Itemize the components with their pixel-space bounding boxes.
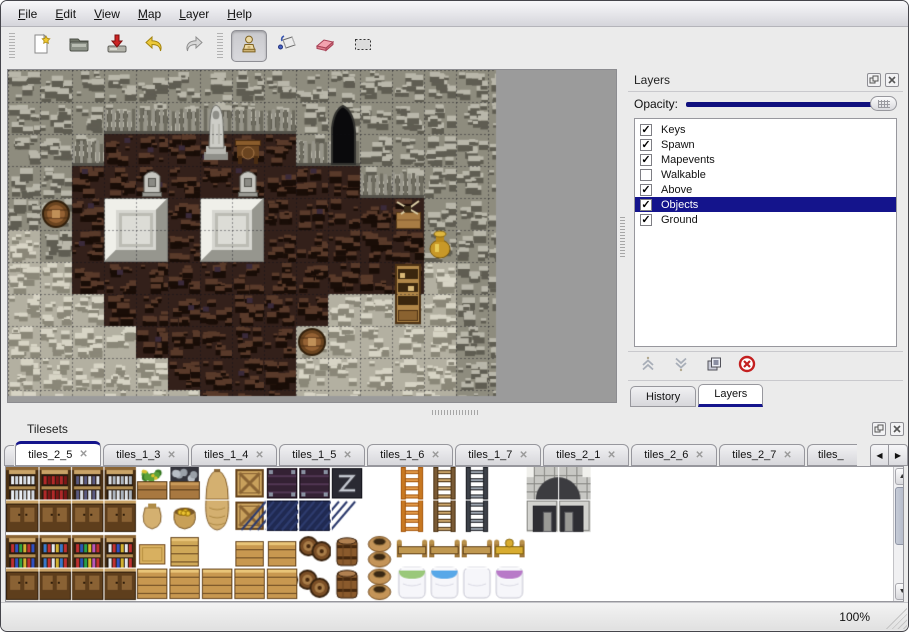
float-panel-icon[interactable]	[867, 73, 881, 87]
horizontal-splitter[interactable]	[1, 407, 908, 418]
eraser-tool-button[interactable]	[307, 30, 343, 62]
tab-layers[interactable]: Layers	[698, 384, 763, 407]
layer-row-spawn[interactable]: ✓Spawn	[635, 137, 896, 152]
move-layer-down-button[interactable]	[671, 356, 691, 376]
duplicate-layer-icon	[705, 355, 723, 378]
menu-bar: FileEditViewMapLayerHelp	[1, 1, 908, 27]
layer-row-above[interactable]: ✓Above	[635, 182, 896, 197]
layer-visibility-checkbox[interactable]	[640, 169, 652, 181]
layers-panel-header: Layers	[628, 69, 903, 91]
tab-scroll-arrows: ◀▶	[870, 444, 908, 466]
tileset-tab-label: tiles_1_6	[380, 449, 424, 461]
undo-icon	[143, 32, 167, 61]
tileset-tab-tiles[interactable]: tiles_	[807, 444, 857, 466]
fill-tool-button[interactable]	[269, 30, 305, 62]
layer-visibility-checkbox[interactable]: ✓	[640, 124, 652, 136]
tileset-tab-tiles_1_3[interactable]: tiles_1_3✕	[103, 444, 189, 466]
close-tab-icon[interactable]: ✕	[783, 450, 791, 461]
tileset-tab-tiles_1_4[interactable]: tiles_1_4✕	[191, 444, 277, 466]
map-canvas[interactable]	[8, 70, 616, 402]
tileset-tab-label: tiles_2_5	[28, 449, 72, 461]
layer-visibility-checkbox[interactable]: ✓	[640, 199, 652, 211]
layer-visibility-checkbox[interactable]: ✓	[640, 139, 652, 151]
layer-row-mapevents[interactable]: ✓Mapevents	[635, 152, 896, 167]
layer-list[interactable]: ✓Keys✓Spawn✓MapeventsWalkable✓Above✓Obje…	[634, 118, 897, 347]
close-panel-icon[interactable]	[885, 73, 899, 87]
layer-name: Objects	[661, 199, 698, 211]
clipped-tab-left[interactable]	[4, 445, 14, 466]
splitter-grip	[432, 410, 478, 415]
slider-grip-dots	[878, 100, 890, 108]
tileset-tab-label: tiles_2_6	[644, 449, 688, 461]
menu-file[interactable]: File	[9, 4, 46, 24]
close-tab-icon[interactable]: ✕	[607, 450, 615, 461]
menu-layer[interactable]: Layer	[170, 4, 218, 24]
delete-layer-icon	[738, 355, 756, 378]
layer-name: Ground	[661, 214, 698, 226]
select-tool-icon	[351, 32, 375, 61]
delete-layer-button[interactable]	[737, 356, 757, 376]
tileset-tab-tiles_2_5[interactable]: tiles_2_5✕	[15, 441, 101, 466]
layer-row-keys[interactable]: ✓Keys	[635, 122, 896, 137]
menu-view[interactable]: View	[85, 4, 129, 24]
open-icon	[67, 32, 91, 61]
duplicate-layer-button[interactable]	[704, 356, 724, 376]
tilesets-panel-title: Tilesets	[27, 422, 68, 436]
eraser-tool-icon	[313, 32, 337, 61]
vertical-splitter[interactable]	[617, 69, 628, 407]
layer-visibility-checkbox[interactable]: ✓	[640, 184, 652, 196]
app-window: FileEditViewMapLayerHelp Layers Opacity:	[0, 0, 909, 632]
save-icon	[105, 32, 129, 61]
tileset-tab-label: tiles_1_7	[468, 449, 512, 461]
panel-window-icons	[872, 422, 904, 436]
scroll-down-icon[interactable]: ▼	[895, 583, 904, 600]
tileset-tab-label: tiles_2_1	[556, 449, 600, 461]
main-area: Layers Opacity: ✓Keys✓Spawn✓MapeventsWal…	[1, 65, 908, 407]
fill-tool-icon	[275, 32, 299, 61]
layer-row-ground[interactable]: ✓Ground	[635, 212, 896, 227]
tileset-tab-label: tiles_2_7	[732, 449, 776, 461]
redo-icon	[181, 32, 205, 61]
tileset-tabs: tiles_2_5✕tiles_1_3✕tiles_1_4✕tiles_1_5✕…	[1, 440, 908, 466]
move-layer-up-icon	[639, 355, 657, 378]
layer-name: Mapevents	[661, 154, 715, 166]
scroll-up-icon[interactable]: ▲	[895, 468, 904, 485]
tilesets-panel-header: Tilesets	[1, 418, 908, 440]
opacity-slider-track[interactable]	[686, 102, 891, 107]
move-layer-down-icon	[672, 355, 690, 378]
close-tab-icon[interactable]: ✕	[255, 450, 263, 461]
tileset-canvas[interactable]	[6, 467, 893, 601]
layer-visibility-checkbox[interactable]: ✓	[640, 214, 652, 226]
tileset-scrollbar[interactable]: ▲ ▼	[893, 467, 904, 601]
tileset-tab-tiles_2_6[interactable]: tiles_2_6✕	[631, 444, 717, 466]
stamp-tool-icon	[237, 32, 261, 61]
tileset-tab-label: tiles_	[818, 449, 844, 461]
layer-visibility-checkbox[interactable]: ✓	[640, 154, 652, 166]
status-bar: 100%	[1, 602, 908, 630]
menu-map[interactable]: Map	[129, 4, 170, 24]
panel-window-icons	[867, 73, 899, 87]
layers-panel-title: Layers	[634, 73, 670, 87]
layer-buttons	[628, 351, 903, 381]
close-tab-icon[interactable]: ✕	[431, 450, 439, 461]
stamp-tool-button[interactable]	[231, 30, 267, 62]
close-tab-icon[interactable]: ✕	[695, 450, 703, 461]
toolbar-grip[interactable]	[9, 33, 15, 59]
toolbar-grip[interactable]	[217, 33, 223, 59]
tileset-tab-tiles_2_1[interactable]: tiles_2_1✕	[543, 444, 629, 466]
menu-help[interactable]: Help	[218, 4, 261, 24]
menu-edit[interactable]: Edit	[46, 4, 85, 24]
layer-row-objects[interactable]: ✓Objects	[635, 197, 896, 212]
layer-name: Spawn	[661, 139, 695, 151]
open-button[interactable]	[61, 30, 97, 62]
tileset-tab-tiles_1_7[interactable]: tiles_1_7✕	[455, 444, 541, 466]
close-tab-icon[interactable]: ✕	[519, 450, 527, 461]
opacity-slider[interactable]	[686, 96, 897, 112]
layers-panel: Layers Opacity: ✓Keys✓Spawn✓MapeventsWal…	[628, 69, 903, 407]
scrollbar-thumb[interactable]	[895, 487, 904, 545]
opacity-label: Opacity:	[634, 97, 678, 111]
float-panel-icon[interactable]	[872, 422, 886, 436]
opacity-row: Opacity:	[628, 92, 903, 116]
tilesets-panel: Tilesets tiles_2_5✕tiles_1_3✕tiles_1_4✕t…	[1, 418, 908, 602]
zoom-level: 100%	[839, 610, 870, 624]
undo-button[interactable]	[137, 30, 173, 62]
new-file-icon	[29, 32, 53, 61]
layer-row-walkable[interactable]: Walkable	[635, 167, 896, 182]
move-layer-up-button[interactable]	[638, 356, 658, 376]
new-file-button[interactable]	[23, 30, 59, 62]
close-panel-icon[interactable]	[890, 422, 904, 436]
tileset-tab-tiles_2_7[interactable]: tiles_2_7✕	[719, 444, 805, 466]
layer-name: Keys	[661, 124, 685, 136]
tileset-tab-tiles_1_5[interactable]: tiles_1_5✕	[279, 444, 365, 466]
tileset-tab-label: tiles_1_4	[204, 449, 248, 461]
close-tab-icon[interactable]: ✕	[79, 449, 87, 460]
tileset-tab-label: tiles_1_5	[292, 449, 336, 461]
toolbar	[1, 27, 908, 65]
tileset-tab-tiles_1_6[interactable]: tiles_1_6✕	[367, 444, 453, 466]
select-tool-button[interactable]	[345, 30, 381, 62]
save-button[interactable]	[99, 30, 135, 62]
tileset-tab-label: tiles_1_3	[116, 449, 160, 461]
scrollbar-track[interactable]	[894, 546, 904, 582]
map-viewport[interactable]	[7, 69, 617, 403]
close-tab-icon[interactable]: ✕	[343, 450, 351, 461]
layer-name: Walkable	[661, 169, 706, 181]
splitter-grip	[620, 217, 625, 259]
close-tab-icon[interactable]: ✕	[167, 450, 175, 461]
tileset-body: ▲ ▼	[5, 466, 904, 602]
redo-button[interactable]	[175, 30, 211, 62]
scroll-tabs-left-icon[interactable]: ◀	[870, 444, 889, 466]
window-resize-grip[interactable]	[883, 605, 907, 629]
opacity-slider-handle[interactable]	[870, 96, 897, 111]
layer-name: Above	[661, 184, 692, 196]
scroll-tabs-right-icon[interactable]: ▶	[889, 444, 908, 466]
panel-tabs: HistoryLayers	[628, 381, 903, 407]
tab-history[interactable]: History	[630, 386, 696, 407]
